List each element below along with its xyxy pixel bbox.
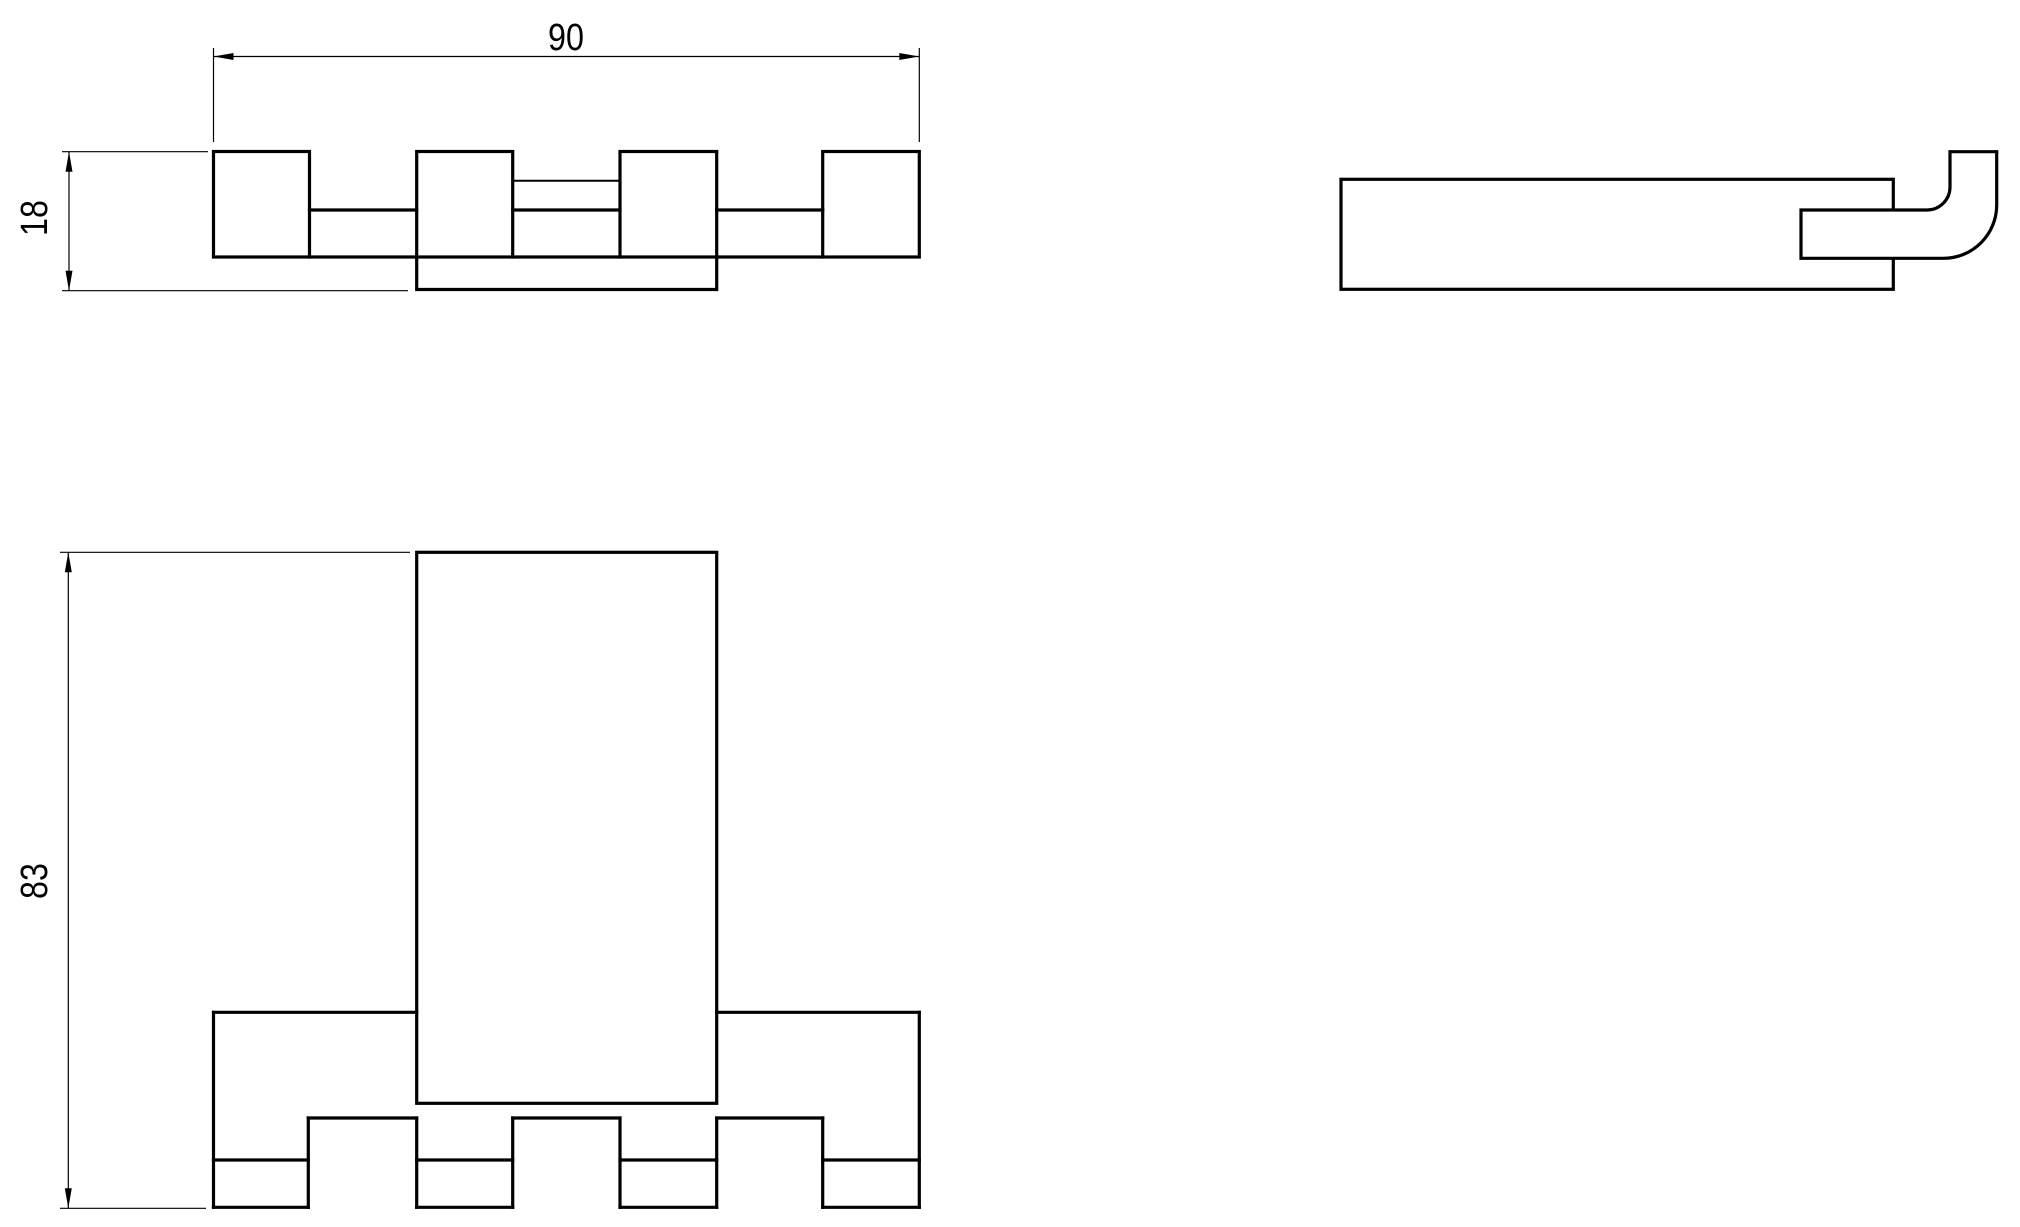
- arrowhead-left: [214, 53, 234, 60]
- arrowhead-up: [65, 552, 72, 572]
- top-view-post-4: [823, 152, 920, 258]
- arrowhead-up: [66, 152, 73, 172]
- dimension-label-width: 90: [548, 17, 584, 59]
- technical-drawing: 90 18 83: [0, 0, 2020, 1227]
- side-view: [1341, 152, 1997, 290]
- arrowhead-down: [65, 1188, 72, 1208]
- dimension-width-90: 90: [214, 17, 920, 142]
- drawing-canvas: 90 18 83: [0, 0, 2020, 1227]
- top-view-plate: [417, 257, 717, 290]
- dimension-label-height: 83: [14, 863, 56, 899]
- arrowhead-down: [66, 271, 73, 291]
- top-view-post-3: [620, 152, 717, 258]
- top-view-post-1: [214, 152, 310, 258]
- top-view-post-2: [417, 152, 513, 258]
- front-view: [214, 552, 920, 1207]
- dimension-height-83: 83: [14, 552, 410, 1208]
- arrowhead-right: [899, 53, 919, 60]
- top-view: [214, 152, 920, 290]
- front-view-plate: [417, 552, 717, 1103]
- dimension-depth-18: 18: [14, 152, 408, 291]
- dimension-label-depth: 18: [14, 200, 56, 236]
